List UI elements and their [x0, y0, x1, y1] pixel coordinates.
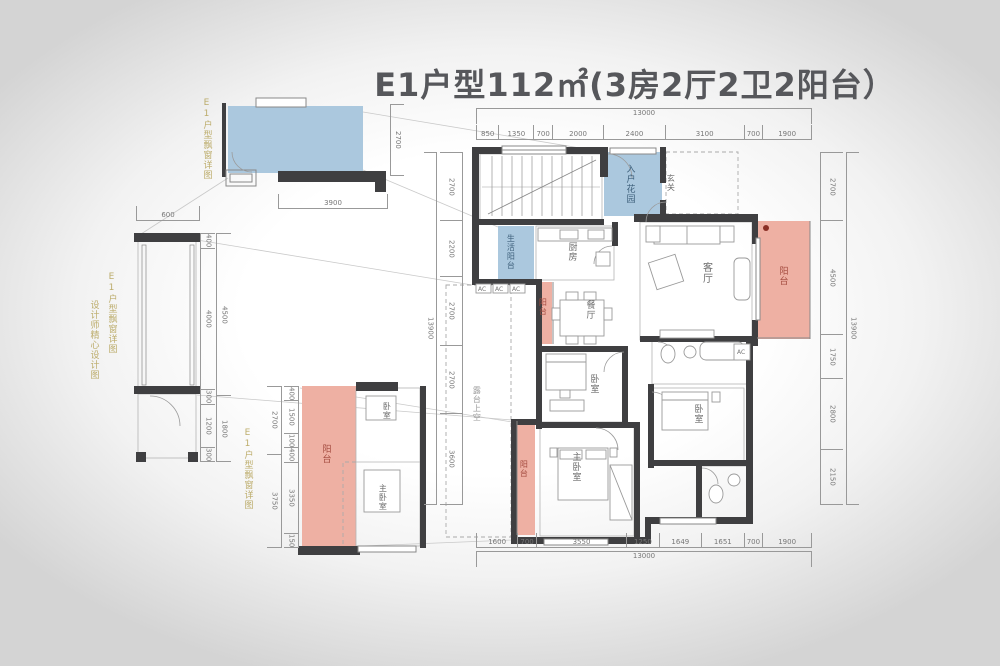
svg-text:AC: AC: [512, 286, 520, 293]
floorplan-page: E1户型112㎡(3房2厅2卫2阳台）: [0, 0, 1000, 666]
balcony-label-right: 阳台: [777, 266, 786, 286]
dim-detail-c-inner: 40015001004003350150: [284, 386, 299, 548]
dim-detail-b-top: 600: [136, 206, 200, 221]
watermark-designer: 设计师精心设计图: [88, 300, 97, 380]
dim-left-segments: 27002200270027003600: [440, 152, 463, 505]
svg-text:AC: AC: [478, 286, 486, 293]
dim-right-segments: 27004500175028002150: [820, 152, 843, 505]
dim-detail-a-height: 2700: [390, 104, 404, 176]
detail-c-balcony-label: 阳台: [320, 444, 329, 464]
staircase: [482, 156, 600, 216]
master-bedroom-label: 主卧室: [570, 452, 579, 482]
upper-void-region: [666, 152, 738, 214]
dim-detail-c-outer: 27003750: [267, 386, 282, 548]
service-balcony-area: [498, 226, 534, 280]
balcony-label-mid: 阳台: [538, 298, 546, 316]
dim-left-total: 13900: [424, 152, 437, 505]
dim-top-segments: 85013507002000240031007001900: [476, 125, 812, 140]
living-label: 客厅: [700, 262, 711, 284]
side-balcony-lower: [517, 421, 535, 535]
bedroom1-label: 卧室: [588, 374, 597, 394]
dim-top-total: 13000: [476, 108, 812, 124]
dim-detail-b-outer: 45001800: [216, 233, 231, 462]
svg-text:AC: AC: [737, 349, 745, 356]
svg-text:AC: AC: [495, 286, 503, 293]
hallway-label: 玄关: [666, 174, 674, 192]
watermark-detail-1: E1户型飘窗详图: [201, 98, 210, 180]
bedroom2-label: 卧室: [692, 404, 701, 424]
balcony-label-lower: 阳台: [519, 460, 527, 478]
dining-label: 餐厅: [584, 300, 593, 320]
dim-detail-a-width: 3900: [278, 194, 388, 209]
watermark-detail-3: E1户型飘窗详图: [242, 428, 251, 510]
dim-right-total: 13900: [846, 152, 859, 505]
entry-garden-label: 入户花园: [624, 164, 633, 204]
dim-detail-b-inner: 40040003001200300: [200, 233, 215, 462]
kitchen-label: 厨房: [566, 242, 575, 262]
detail-c-balcony: [302, 386, 356, 547]
detail-c-master-label: 主卧室: [378, 484, 386, 511]
service-balcony-label: 生活阳台: [506, 234, 514, 270]
dim-bottom-segments: 160070035501250164916517001900: [476, 533, 812, 548]
terrace-void-label: 露台上空: [472, 386, 480, 422]
dim-bottom-total: 13000: [476, 551, 812, 567]
watermark-detail-2: E1户型飘窗详图: [106, 272, 115, 354]
detail-a-garden: [228, 106, 363, 173]
detail-c-bedroom-label: 卧室: [382, 402, 390, 420]
